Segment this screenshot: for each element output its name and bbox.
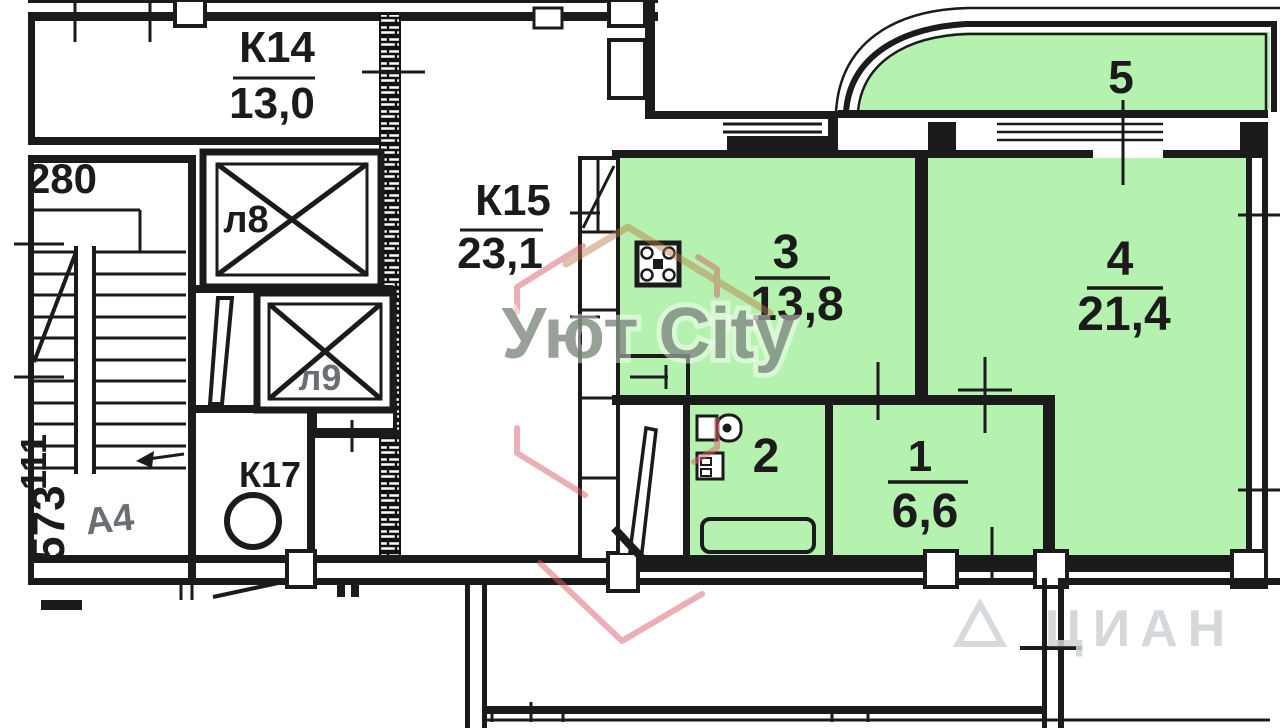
space-k14-area: 13,0 xyxy=(229,79,315,128)
room-1-area: 6,6 xyxy=(892,485,959,538)
elevator-l8-label: л8 xyxy=(223,199,268,241)
space-k14-label: К14 xyxy=(239,23,315,72)
room-5-number: 5 xyxy=(1108,51,1134,103)
room-4-number: 4 xyxy=(1107,233,1134,286)
stair-number: 280 xyxy=(27,155,97,202)
corner-watermark: ЦИАН xyxy=(958,600,1235,658)
elevator-l9-label: л9 xyxy=(299,357,342,398)
space-k17-label: К17 xyxy=(239,454,301,495)
floor-plan-page: К14 13,0 К15 23,1 К17 280 111 573 А4 л8 … xyxy=(0,0,1280,728)
room-4-area: 21,4 xyxy=(1077,288,1171,341)
garbage-chute-circle xyxy=(227,495,279,547)
stair-side-lower: 573 xyxy=(22,485,74,562)
room-3-number: 3 xyxy=(773,226,800,279)
stove-icon xyxy=(637,243,679,285)
room-1-number: 1 xyxy=(908,432,932,481)
space-k15-label: К15 xyxy=(475,176,551,225)
stair-note-a4: А4 xyxy=(83,497,136,544)
stair-side-upper: 111 xyxy=(13,434,54,490)
entry-door xyxy=(614,407,681,558)
stairwell xyxy=(34,210,186,474)
center-watermark: Уют City xyxy=(501,294,794,374)
elevator-lobby-door-leaf xyxy=(210,298,232,404)
balcony-5-fill xyxy=(860,32,1270,110)
floor-plan: К14 13,0 К15 23,1 К17 280 111 573 А4 л8 … xyxy=(0,0,1280,728)
room-2-number: 2 xyxy=(753,430,780,483)
corner-watermark-text: ЦИАН xyxy=(1045,600,1235,658)
corner-watermark-logo xyxy=(958,604,1002,644)
space-k15-area: 23,1 xyxy=(457,229,543,278)
